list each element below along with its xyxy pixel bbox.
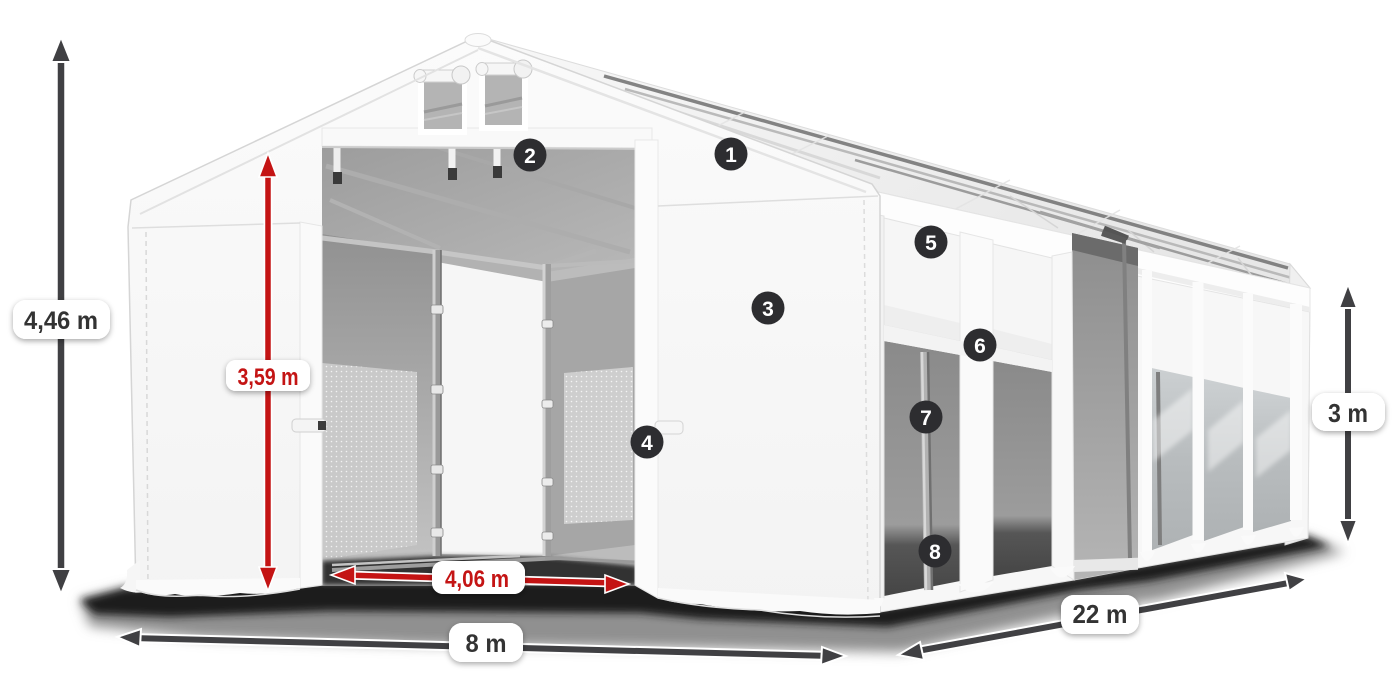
svg-text:3,59 m: 3,59 m (238, 364, 299, 391)
svg-text:3: 3 (762, 298, 774, 321)
svg-text:4,46 m: 4,46 m (24, 307, 98, 335)
svg-text:7: 7 (920, 407, 932, 430)
svg-text:4: 4 (641, 432, 653, 455)
svg-text:8 m: 8 m (466, 630, 507, 658)
svg-text:1: 1 (725, 144, 737, 167)
svg-text:8: 8 (929, 541, 941, 564)
svg-text:2: 2 (524, 145, 536, 168)
svg-text:4,06 m: 4,06 m (445, 566, 509, 593)
svg-text:22 m: 22 m (1073, 599, 1128, 629)
svg-text:3 m: 3 m (1328, 398, 1368, 428)
svg-text:5: 5 (925, 232, 937, 255)
svg-text:6: 6 (974, 335, 986, 358)
